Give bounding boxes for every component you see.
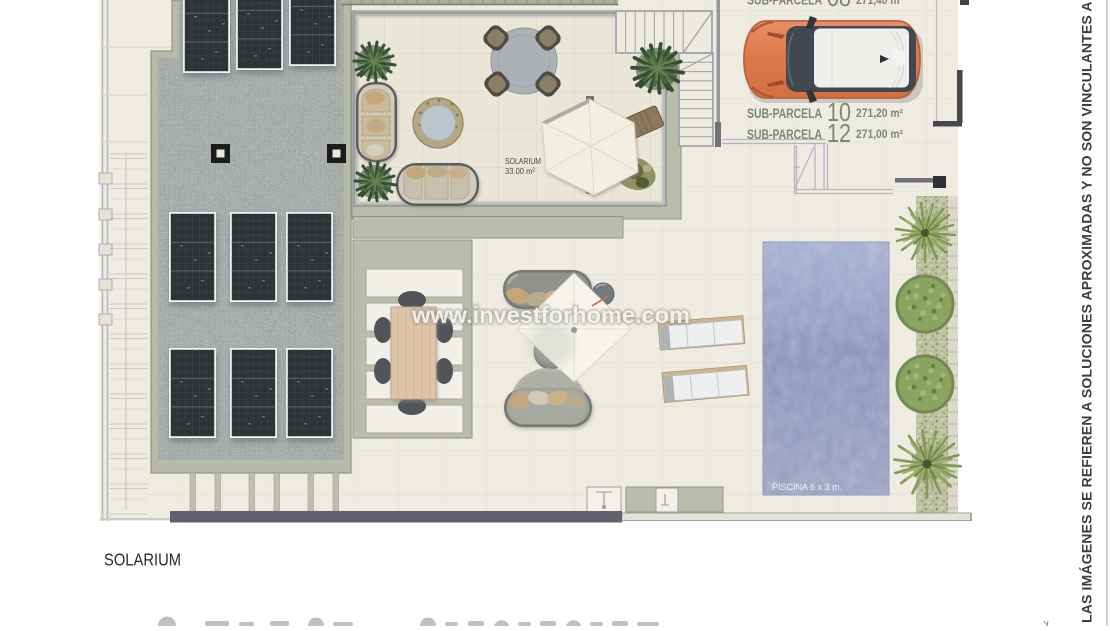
svg-text:LAS IMÁGENES SE REFIEREN A SOL: LAS IMÁGENES SE REFIEREN A SOLUCIONES AP… bbox=[1079, 1, 1095, 623]
